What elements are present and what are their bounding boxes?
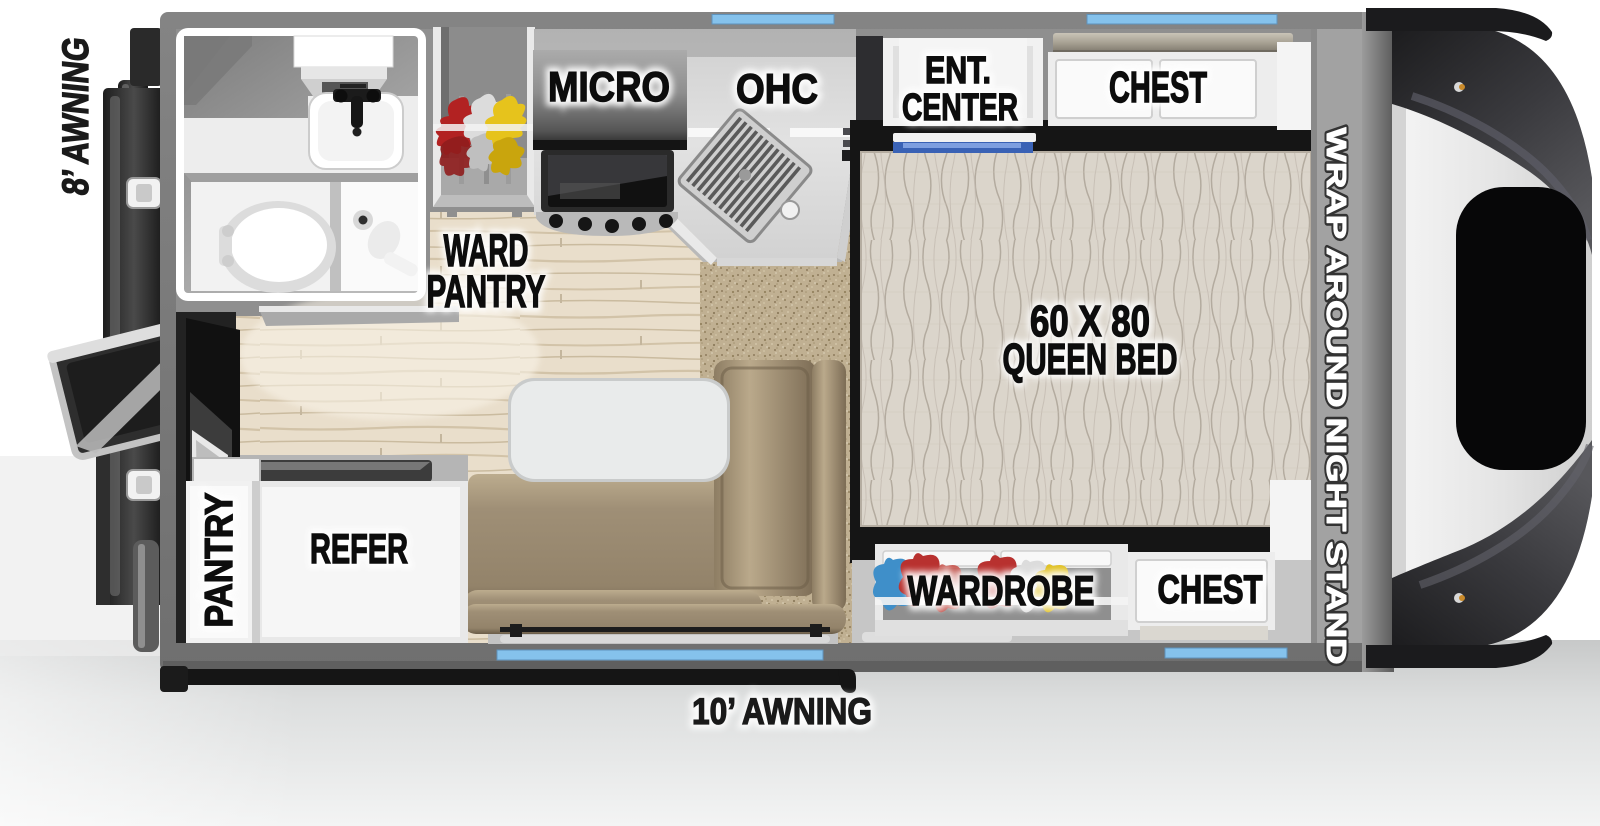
svg-text:CHEST: CHEST	[1109, 63, 1207, 112]
svg-text:WARDROBE: WARDROBE	[908, 567, 1095, 614]
svg-text:10’ AWNING: 10’ AWNING	[692, 691, 872, 732]
svg-text:CENTER: CENTER	[902, 87, 1018, 129]
svg-text:PANTRY: PANTRY	[198, 493, 241, 628]
svg-text:8’ AWNING: 8’ AWNING	[54, 35, 96, 197]
svg-text:CHEST: CHEST	[1158, 568, 1263, 612]
svg-text:REFER: REFER	[310, 525, 408, 572]
svg-text:OHC: OHC	[736, 65, 818, 112]
svg-text:MICRO: MICRO	[548, 63, 670, 110]
svg-text:WRAP AROUND NIGHT STAND: WRAP AROUND NIGHT STAND	[1321, 128, 1352, 665]
svg-text:QUEEN BED: QUEEN BED	[1003, 335, 1178, 384]
svg-text:PANTRY: PANTRY	[427, 266, 546, 317]
svg-text:ENT.: ENT.	[925, 50, 991, 92]
